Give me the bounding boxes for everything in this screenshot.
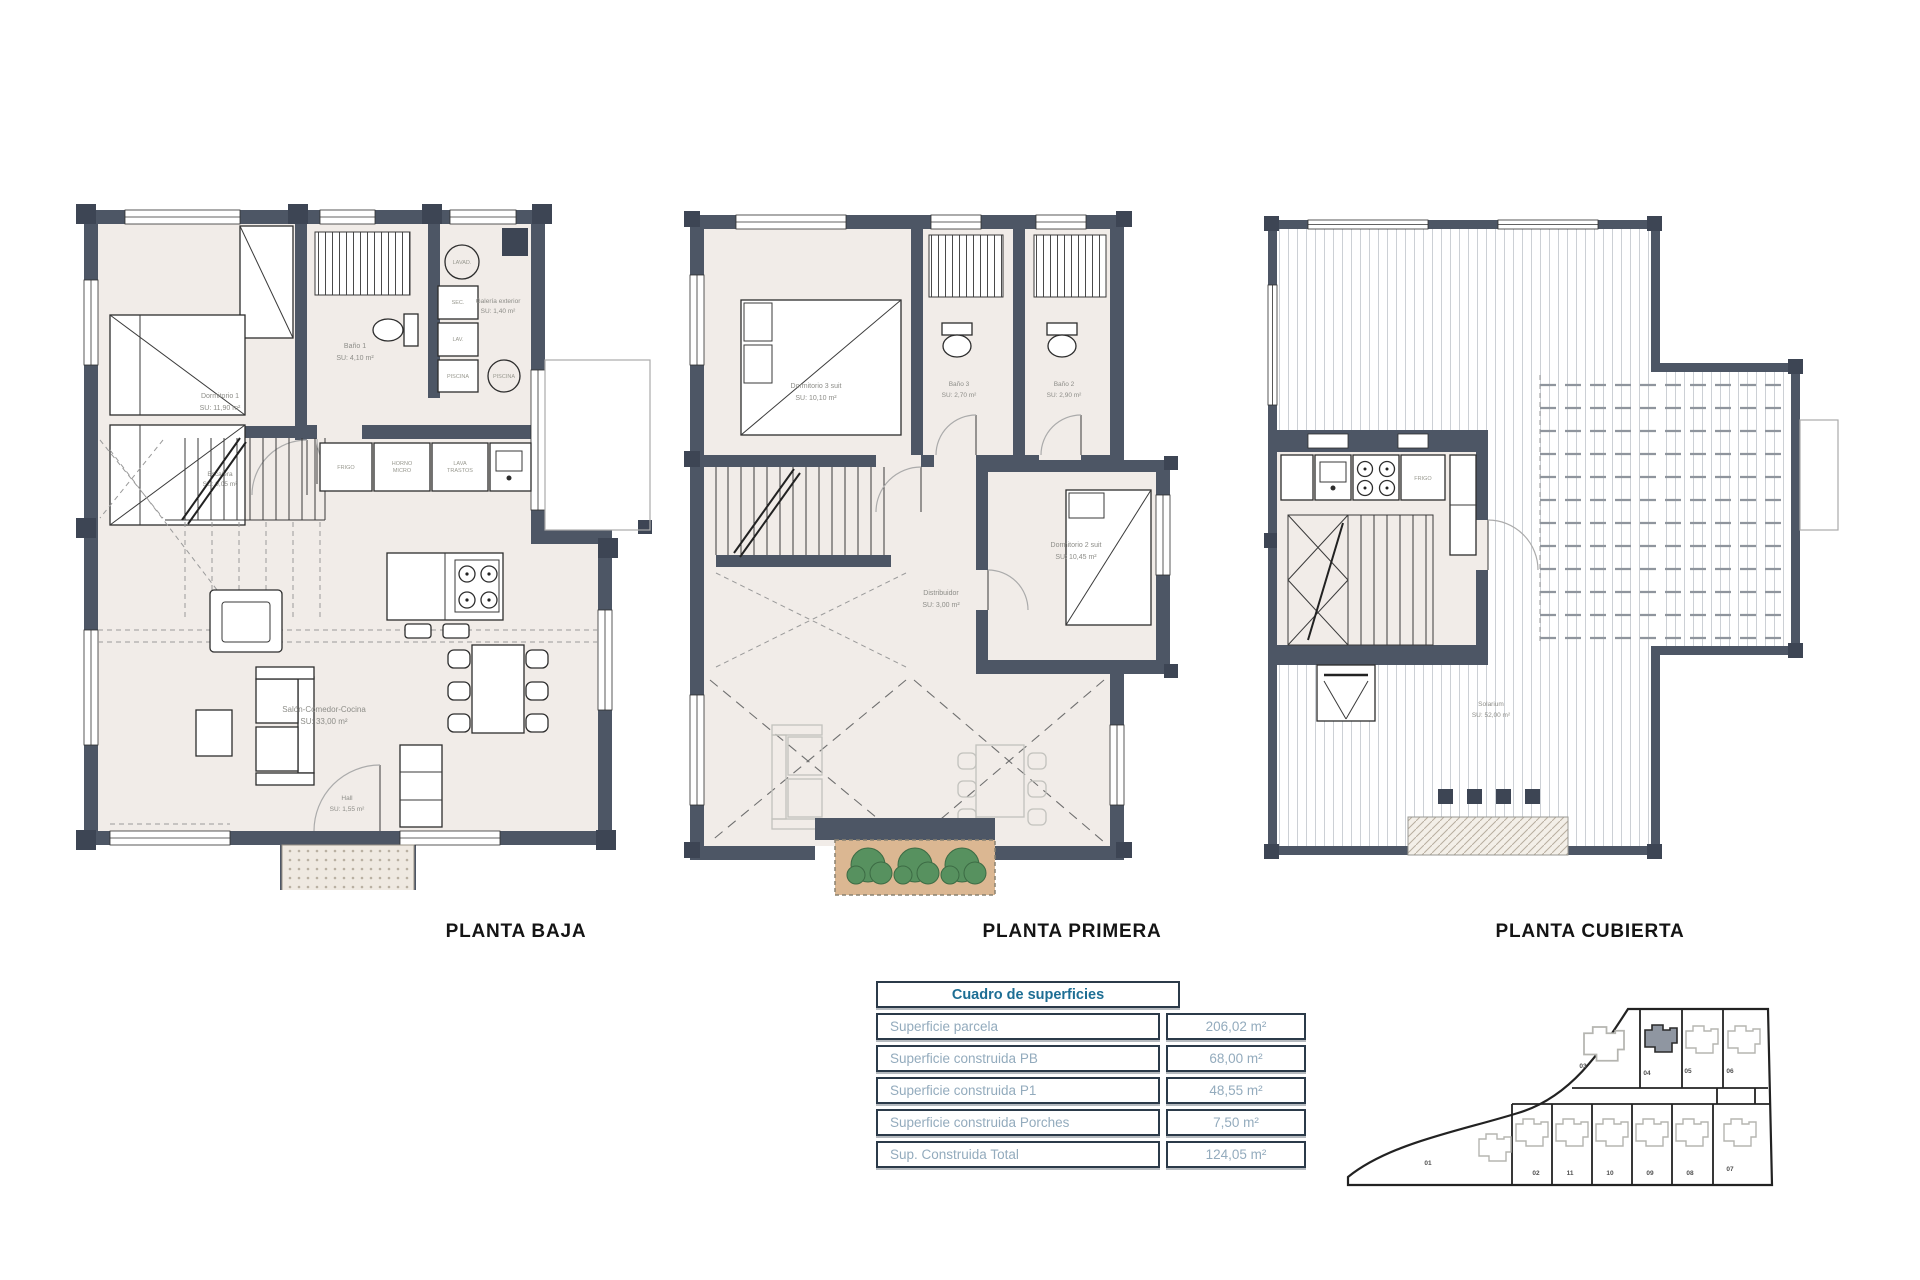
frigo-label: FRIGO [337,465,355,471]
table-row: Superficie construida P1 48,55 m² [876,1077,1316,1104]
galeria-piscina2-label: PISCINA [493,374,515,380]
house-icon-09 [1636,1119,1668,1146]
room-area-bano1: SU: 4,10 m² [336,355,374,362]
porch-paving [282,845,414,890]
bed-icon [741,300,901,435]
plot-label-10: 10 [1606,1170,1614,1177]
sink-icon [1315,455,1351,500]
house-icon-01 [1479,1134,1511,1161]
balcony-outline [1800,420,1838,530]
house-icon-11 [1556,1119,1588,1146]
galeria-lavad-label: LAVAD. [453,260,472,266]
row-value: 68,00 m² [1166,1045,1306,1072]
title-planta-cubierta: PLANTA CUBIERTA [1496,921,1685,943]
house-icon-03 [1584,1027,1624,1061]
row-label: Superficie construida P1 [876,1077,1160,1104]
room-area-dormitorio3: SU: 10,10 m² [795,395,837,402]
plot-label-11: 11 [1567,1170,1574,1177]
plot-label-03: 03 [1579,1063,1587,1070]
room-label-solarium: Solarium [1478,701,1504,708]
plot-label-01: 01 [1424,1160,1432,1167]
row-value: 7,50 m² [1166,1109,1306,1136]
house-icon-06 [1728,1026,1760,1053]
room-area-distribuidor: SU: 3,00 m² [922,602,960,609]
house-icon-10 [1596,1119,1628,1146]
room-label-dormitorio3: Dormitorio 3 suit [791,383,842,390]
row-value: 48,55 m² [1166,1077,1306,1104]
table-row: Superficie parcela 206,02 m² [876,1013,1316,1040]
shower-icon [1317,665,1375,721]
site-plan: 01 02 11 10 09 08 07 03 04 05 06 [1340,985,1820,1220]
room-label-distribuidor: Distribuidor [923,590,959,597]
row-label: Superficie construida Porches [876,1109,1160,1136]
table-row: Superficie construida Porches 7,50 m² [876,1109,1316,1136]
toilet-icon [1048,335,1076,357]
surfaces-table-title: Cuadro de superficies [876,981,1180,1008]
table-row: Superficie construida PB 68,00 m² [876,1045,1316,1072]
room-area-bano2: SU: 2,90 m² [1047,392,1083,399]
kitchen-appliances: FRIGO HORNO MICRO LAVA TRASTOS [320,443,531,491]
plot-label-04: 04 [1643,1070,1651,1077]
room-label-bano2: Baño 2 [1054,381,1075,388]
row-value: 124,05 m² [1166,1141,1306,1168]
galeria-sec-label: SEC. [452,300,465,306]
room-label-galeria: Galería exterior [476,298,522,305]
room-label-dormitorio2: Dormitorio 2 suit [1051,542,1102,549]
room-area-solarium: SU: 52,00 m² [1472,712,1511,719]
galeria-piscina-label: PISCINA [447,374,469,380]
title-planta-baja: PLANTA BAJA [446,921,587,943]
row-label: Superficie parcela [876,1013,1160,1040]
plot-label-02: 02 [1532,1170,1540,1177]
porch-outline [545,360,650,530]
toilet-icon [373,319,403,341]
room-area-dormitorio2: SU: 10,45 m² [1055,554,1097,561]
plot-label-05: 05 [1684,1068,1692,1075]
house-icon-05 [1686,1026,1718,1053]
horno-label-1: HORNO [392,461,413,467]
planta-cubierta-plan: FRIGO Solarium [1248,205,1848,875]
surfaces-table: Cuadro de superficies Superficie parcela… [876,981,1316,1168]
room-area-salon: SU: 33,00 m² [300,717,347,726]
planta-baja-plan: Dormitorio 1 SU: 11,90 m² Baño 1 SU: 4,1… [70,190,670,890]
horno-label-2: MICRO [393,468,412,474]
solarium-decking [1660,372,1791,646]
room-area-dormitorio1: SU: 11,90 m² [200,405,241,412]
room-label-hall: Hall [341,795,353,802]
plot-label-06: 06 [1726,1068,1734,1075]
lava-label-2: TRASTOS [447,468,473,474]
house-icon-02 [1516,1119,1548,1146]
room-area-bano3: SU: 2,70 m² [942,392,978,399]
galeria-lav-label: LAV. [452,337,463,343]
row-value: 206,02 m² [1166,1013,1306,1040]
planter-icon [815,818,995,895]
planta-primera-plan: Dormitorio 3 suit SU: 10,10 m² Baño 3 SU… [676,205,1196,905]
table-row: Sup. Construida Total 124,05 m² [876,1141,1316,1168]
room-area-hall: SU: 1,55 m² [330,806,366,813]
house-icon-04-highlighted [1645,1025,1677,1052]
room-label-bano3: Baño 3 [949,381,970,388]
plot-label-08: 08 [1686,1170,1694,1177]
armchair-icon [210,590,282,652]
tv-unit-icon [400,745,442,827]
room-label-bano1: Baño 1 [344,343,366,350]
house-icon-08 [1676,1119,1708,1146]
room-label-salon: Salón-Comedor-Cocina [282,705,366,714]
surfaces-table-title-text: Cuadro de superficies [952,987,1104,1003]
room-label-dormitorio1: Dormitorio 1 [201,393,239,400]
stove-icon [1353,455,1399,500]
frigo-label: FRIGO [1414,476,1432,482]
row-label: Superficie construida PB [876,1045,1160,1072]
row-label: Sup. Construida Total [876,1141,1160,1168]
lava-label-1: LAVA [453,461,467,467]
toilet-icon [943,335,971,357]
side-table-icon [196,710,232,756]
house-icon-07 [1724,1119,1756,1146]
title-planta-primera: PLANTA PRIMERA [982,921,1161,943]
room-area-galeria: SU: 1,40 m² [481,308,517,315]
plot-label-09: 09 [1646,1170,1654,1177]
dining-table-icon [448,645,548,733]
plot-label-07: 07 [1726,1166,1734,1173]
